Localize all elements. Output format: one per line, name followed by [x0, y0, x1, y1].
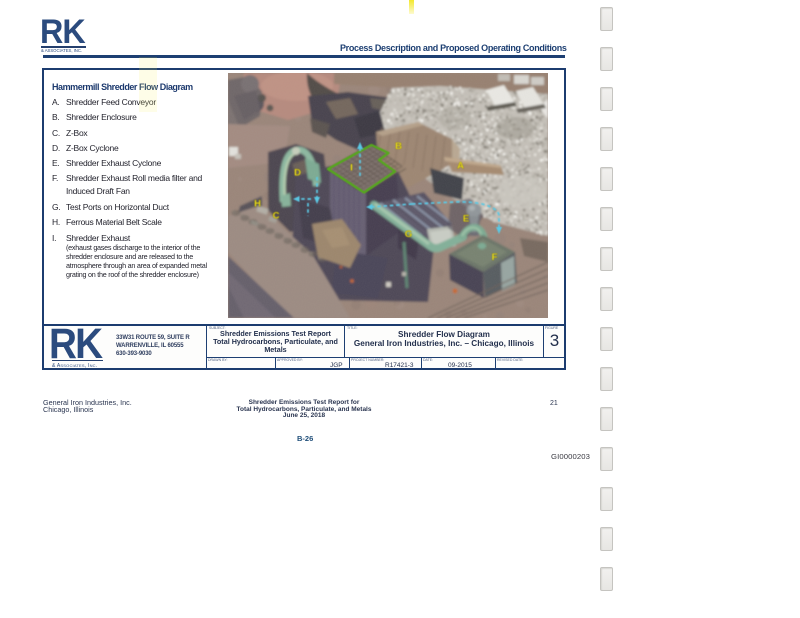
svg-text:I: I	[350, 163, 353, 174]
svg-text:D: D	[294, 168, 301, 179]
svg-text:E: E	[463, 214, 469, 225]
svg-text:F: F	[492, 252, 498, 263]
svg-text:C: C	[273, 211, 280, 222]
svg-text:G: G	[405, 229, 412, 240]
svg-text:B: B	[395, 141, 402, 152]
svg-text:H: H	[254, 199, 261, 210]
svg-text:A: A	[457, 161, 464, 172]
